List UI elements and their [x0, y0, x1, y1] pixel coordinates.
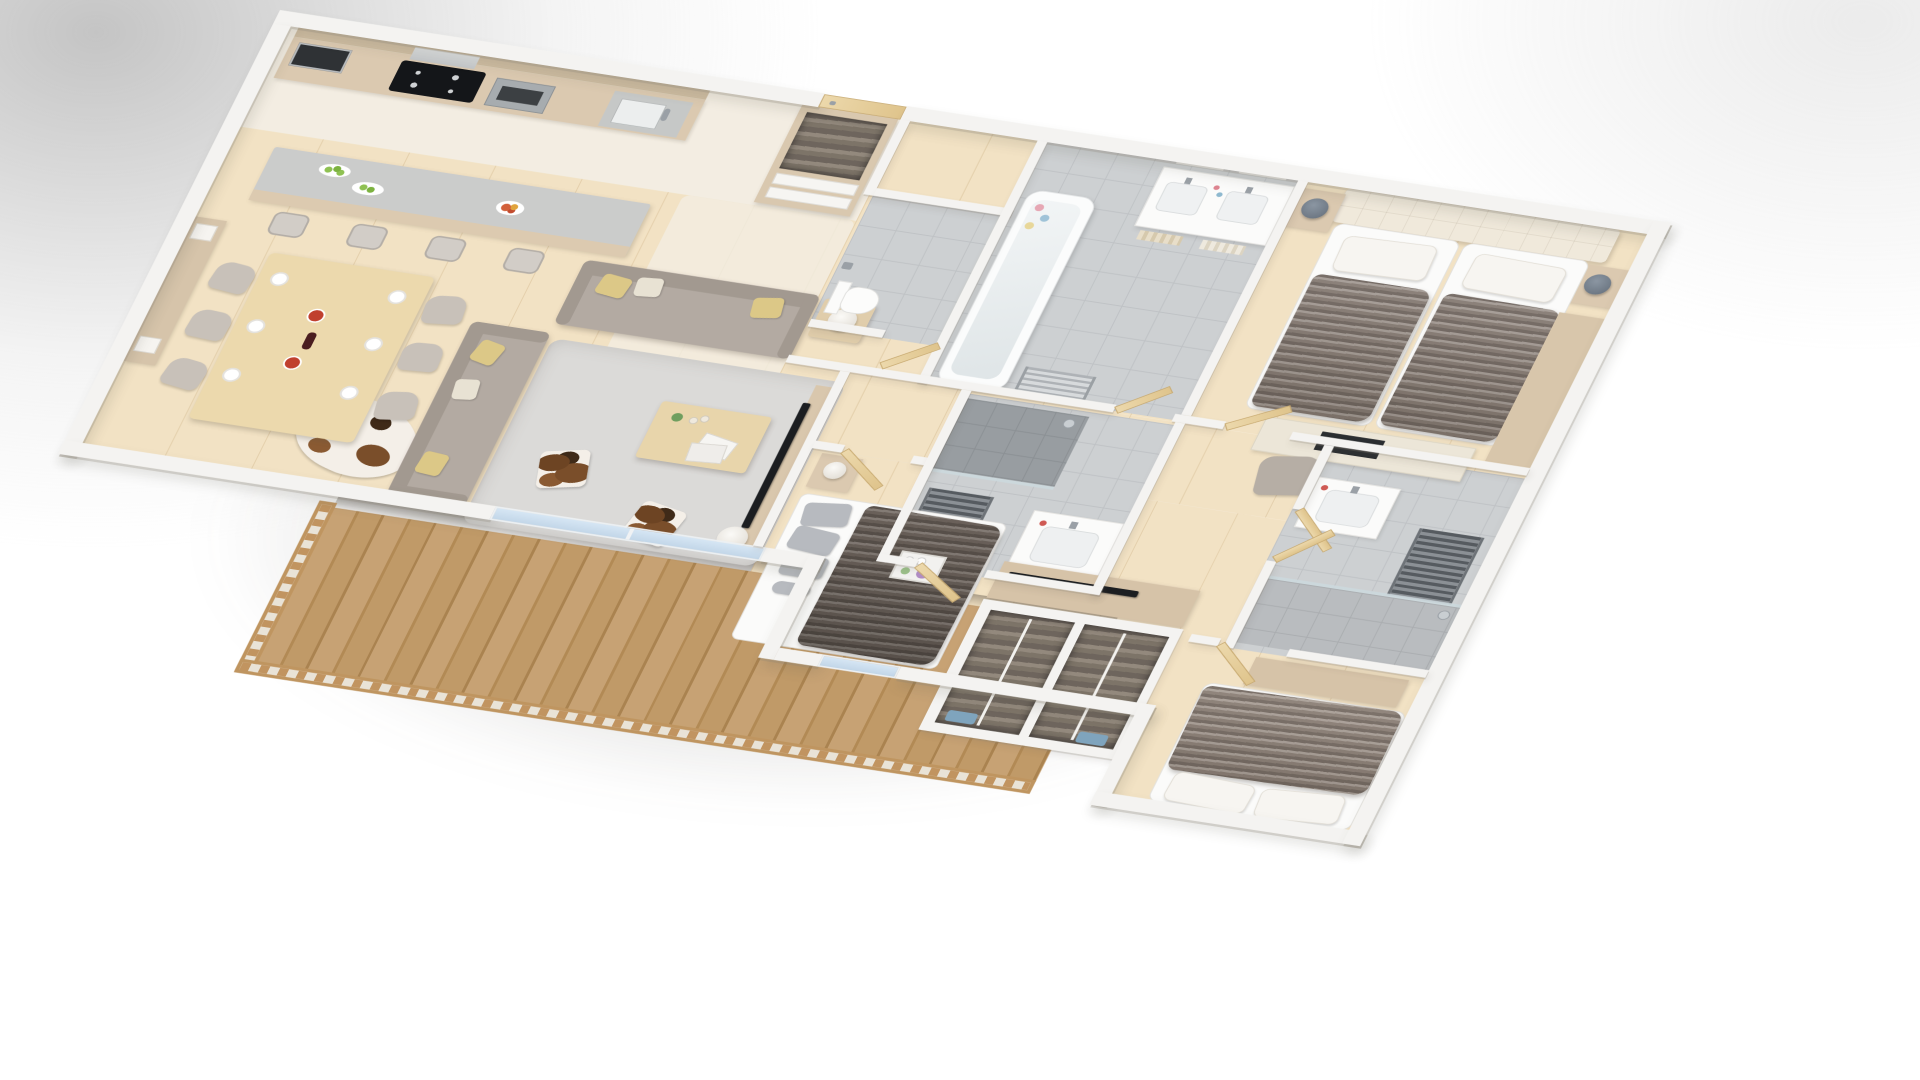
faucet-icon [1184, 177, 1193, 184]
blue-garment [1075, 731, 1110, 746]
blue-garment [944, 710, 979, 725]
faucet-icon [1068, 521, 1078, 529]
soap-red [1038, 520, 1048, 526]
washbasin [1313, 489, 1382, 529]
green-cup [899, 567, 911, 575]
cowhide-ottoman-1 [535, 449, 591, 488]
toiletries-pink [1213, 185, 1221, 190]
door-handle-icon [829, 101, 837, 106]
magazine [684, 442, 727, 463]
oven-window [496, 86, 544, 106]
faucet-icon [1245, 187, 1254, 194]
closet-hanging-jackets [779, 112, 887, 181]
cushion-yellow [749, 298, 785, 319]
vanity-sink-1 [1154, 181, 1210, 216]
vanity-sink-2 [1215, 190, 1271, 225]
soap-red [1320, 485, 1330, 491]
wardrobe-rail [976, 619, 1032, 726]
wardrobe-rail [1070, 633, 1126, 740]
washbasin [1027, 525, 1101, 569]
toiletries-blue [1215, 192, 1223, 197]
glass-door-frame [625, 528, 634, 539]
gray-pillow [799, 502, 853, 527]
